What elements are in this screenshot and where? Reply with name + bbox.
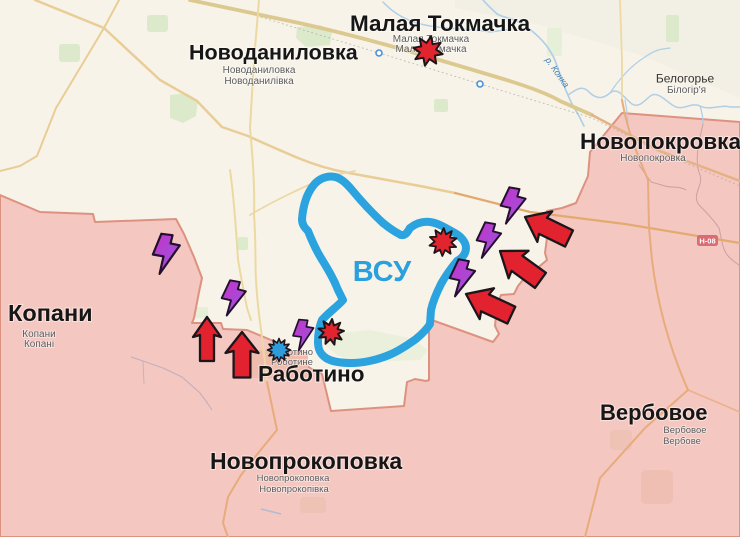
svg-text:Вербовое: Вербовое: [663, 425, 706, 436]
svg-text:Новопокровка: Новопокровка: [580, 129, 740, 154]
svg-text:Новопокровка: Новопокровка: [620, 153, 686, 164]
svg-text:Белогорье: Белогорье: [656, 72, 715, 86]
svg-text:Копани: Копани: [8, 300, 93, 326]
svg-text:Новоданилівка: Новоданилівка: [224, 76, 294, 87]
svg-text:ВСУ: ВСУ: [353, 256, 412, 288]
svg-text:Новоданиловка: Новоданиловка: [189, 41, 359, 65]
svg-text:Білогір'я: Білогір'я: [667, 85, 706, 96]
svg-text:Малая Токмачка: Малая Токмачка: [350, 11, 531, 36]
svg-text:Новопрокоповка: Новопрокоповка: [257, 473, 330, 484]
svg-text:Новопрокопівка: Новопрокопівка: [259, 484, 329, 495]
svg-text:Вербове: Вербове: [663, 436, 701, 447]
svg-text:Копані: Копані: [24, 339, 54, 350]
svg-text:Новопрокоповка: Новопрокоповка: [210, 448, 402, 474]
svg-text:Вербовое: Вербовое: [600, 400, 708, 425]
svg-text:Н-08: Н-08: [699, 237, 715, 246]
svg-text:Новоданиловка: Новоданиловка: [223, 65, 296, 76]
